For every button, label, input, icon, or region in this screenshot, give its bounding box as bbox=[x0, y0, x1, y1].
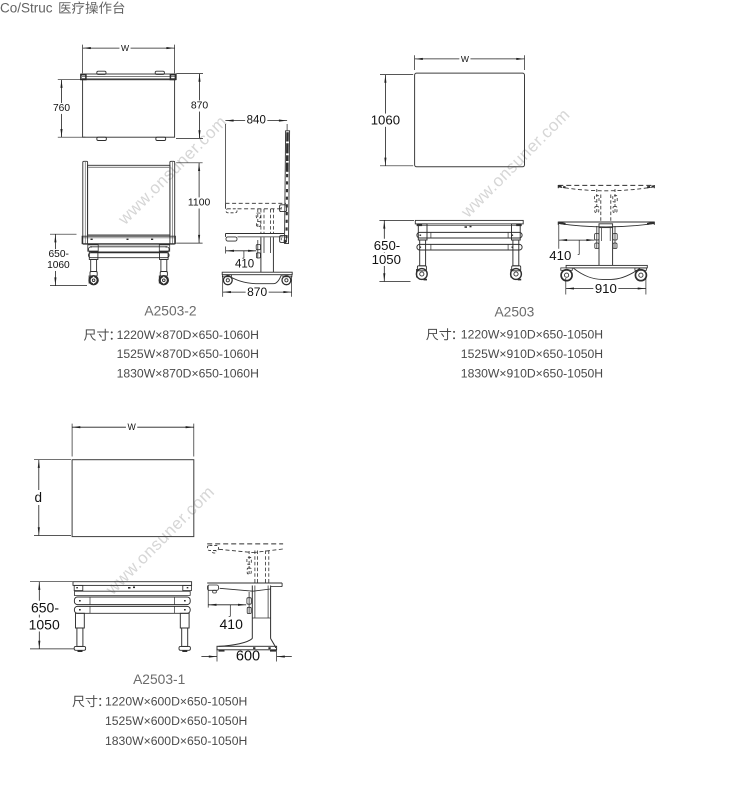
svg-text:W: W bbox=[127, 422, 136, 432]
svg-text:600: 600 bbox=[236, 649, 260, 665]
svg-text:Co/Struc: Co/Struc bbox=[0, 1, 53, 16]
svg-text:A2503-2: A2503-2 bbox=[144, 304, 196, 319]
svg-text:650-: 650- bbox=[374, 238, 400, 253]
svg-text:A2503: A2503 bbox=[494, 305, 534, 320]
svg-text:1830W×600D×650-1050H: 1830W×600D×650-1050H bbox=[105, 734, 247, 748]
svg-text:1220W×910D×650-1050H: 1220W×910D×650-1050H bbox=[461, 327, 603, 341]
svg-text:1220W×600D×650-1050H: 1220W×600D×650-1050H bbox=[105, 694, 247, 708]
svg-text:W: W bbox=[121, 43, 130, 53]
svg-text:1100: 1100 bbox=[188, 197, 211, 208]
svg-text:1060: 1060 bbox=[371, 113, 400, 128]
svg-text:650-: 650- bbox=[31, 600, 59, 616]
svg-text:1050: 1050 bbox=[372, 252, 401, 267]
svg-text:W: W bbox=[461, 54, 470, 64]
svg-text:d: d bbox=[35, 490, 43, 505]
svg-text:410: 410 bbox=[220, 616, 244, 632]
svg-text:1220W×870D×650-1060H: 1220W×870D×650-1060H bbox=[117, 328, 259, 342]
svg-text:1060: 1060 bbox=[47, 260, 70, 271]
svg-text:840: 840 bbox=[247, 115, 266, 127]
svg-text:1830W×910D×650-1050H: 1830W×910D×650-1050H bbox=[461, 366, 603, 380]
svg-text:1525W×600D×650-1050H: 1525W×600D×650-1050H bbox=[105, 714, 247, 728]
svg-text:910: 910 bbox=[595, 281, 617, 296]
svg-text:1525W×910D×650-1050H: 1525W×910D×650-1050H bbox=[461, 347, 603, 361]
svg-text:410: 410 bbox=[549, 248, 571, 263]
svg-text:1050: 1050 bbox=[29, 617, 60, 633]
svg-text:870: 870 bbox=[247, 285, 267, 299]
svg-text:1525W×870D×650-1060H: 1525W×870D×650-1060H bbox=[117, 347, 259, 361]
svg-text:410: 410 bbox=[235, 259, 254, 271]
svg-text:A2503-1: A2503-1 bbox=[133, 672, 185, 687]
svg-text:760: 760 bbox=[53, 103, 70, 114]
svg-text:870: 870 bbox=[191, 101, 209, 112]
svg-text:1830W×870D×650-1060H: 1830W×870D×650-1060H bbox=[117, 366, 259, 380]
svg-text:650-: 650- bbox=[49, 249, 69, 260]
